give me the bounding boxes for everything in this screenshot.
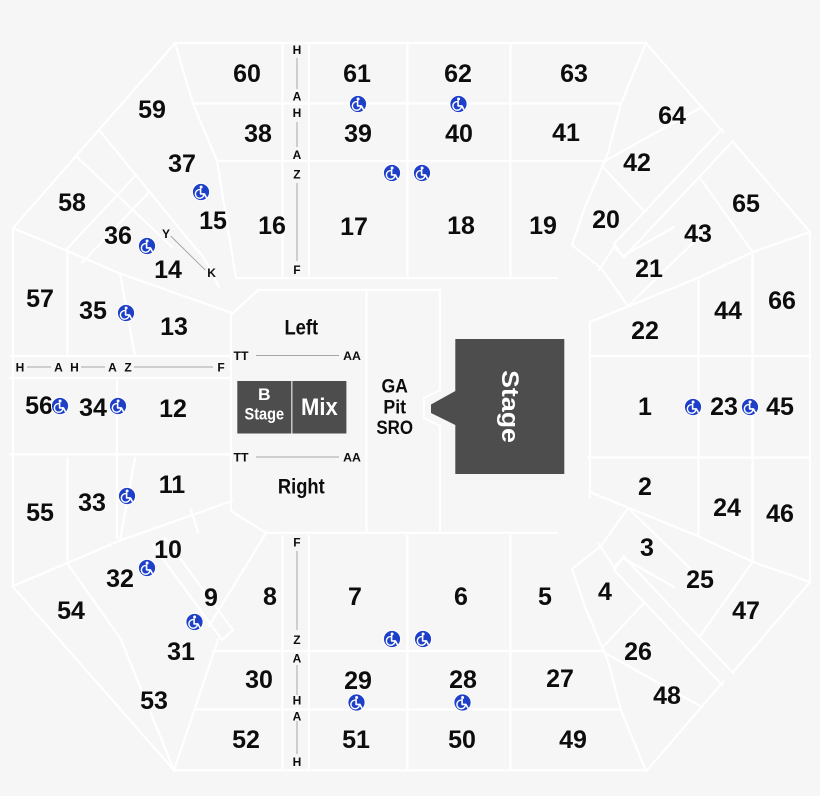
svg-text:30: 30	[245, 666, 273, 694]
svg-text:SRO: SRO	[376, 417, 413, 439]
svg-text:28: 28	[449, 666, 477, 694]
svg-text:31: 31	[167, 638, 195, 666]
svg-text:45: 45	[766, 393, 794, 421]
svg-text:63: 63	[560, 60, 588, 88]
svg-text:36: 36	[104, 222, 132, 250]
svg-text:14: 14	[154, 256, 182, 284]
svg-text:A: A	[293, 148, 302, 162]
svg-text:18: 18	[447, 212, 475, 240]
svg-text:13: 13	[160, 313, 188, 341]
svg-text:59: 59	[138, 96, 166, 124]
svg-text:8: 8	[263, 583, 277, 611]
svg-text:57: 57	[26, 285, 54, 313]
svg-text:4: 4	[598, 578, 612, 606]
svg-text:H: H	[70, 361, 79, 375]
svg-text:37: 37	[168, 150, 196, 178]
svg-text:19: 19	[529, 212, 557, 240]
svg-text:H: H	[293, 694, 302, 708]
svg-text:H: H	[293, 106, 302, 120]
svg-text:F: F	[293, 263, 300, 277]
svg-text:Right: Right	[278, 475, 325, 499]
svg-text:26: 26	[624, 638, 652, 666]
svg-text:A: A	[293, 710, 302, 724]
svg-text:38: 38	[244, 120, 272, 148]
svg-text:50: 50	[448, 726, 476, 754]
svg-text:42: 42	[623, 149, 651, 177]
svg-text:H: H	[16, 361, 25, 375]
svg-text:27: 27	[546, 665, 574, 693]
svg-text:62: 62	[444, 60, 472, 88]
svg-text:49: 49	[559, 726, 587, 754]
svg-text:58: 58	[58, 189, 86, 217]
svg-text:A: A	[54, 361, 63, 375]
svg-text:A: A	[293, 89, 302, 103]
svg-text:43: 43	[684, 220, 712, 248]
svg-text:F: F	[217, 361, 224, 375]
svg-text:54: 54	[57, 597, 85, 625]
svg-text:65: 65	[732, 190, 760, 218]
svg-text:AA: AA	[343, 349, 361, 363]
svg-text:2: 2	[638, 473, 652, 501]
svg-text:5: 5	[538, 583, 552, 611]
svg-text:56: 56	[25, 392, 53, 420]
svg-text:40: 40	[445, 120, 473, 148]
svg-text:Z: Z	[293, 633, 300, 647]
svg-text:32: 32	[106, 565, 134, 593]
svg-text:Z: Z	[124, 361, 131, 375]
svg-text:15: 15	[199, 207, 227, 235]
svg-text:Stage: Stage	[245, 405, 285, 424]
svg-text:20: 20	[592, 206, 620, 234]
svg-text:H: H	[293, 43, 302, 57]
svg-text:41: 41	[552, 119, 580, 147]
svg-text:35: 35	[79, 297, 107, 325]
svg-text:17: 17	[340, 213, 368, 241]
svg-text:34: 34	[79, 394, 107, 422]
svg-text:66: 66	[768, 287, 796, 315]
svg-text:AA: AA	[343, 451, 361, 465]
svg-text:TT: TT	[233, 451, 249, 465]
svg-text:6: 6	[454, 583, 468, 611]
svg-text:51: 51	[342, 726, 370, 754]
svg-text:K: K	[207, 266, 216, 280]
svg-text:7: 7	[348, 583, 362, 611]
svg-text:A: A	[293, 652, 302, 666]
svg-text:Pit: Pit	[383, 397, 406, 419]
svg-text:10: 10	[154, 536, 182, 564]
svg-text:48: 48	[653, 682, 681, 710]
svg-text:F: F	[293, 536, 300, 550]
svg-text:11: 11	[159, 471, 186, 499]
svg-text:Z: Z	[293, 168, 300, 182]
svg-text:9: 9	[204, 584, 218, 612]
svg-text:Left: Left	[284, 316, 318, 340]
svg-text:H: H	[293, 755, 302, 769]
svg-text:16: 16	[258, 212, 286, 240]
svg-text:12: 12	[159, 395, 187, 423]
svg-text:47: 47	[732, 597, 760, 625]
svg-text:3: 3	[640, 534, 654, 562]
svg-text:TT: TT	[233, 349, 249, 363]
svg-text:A: A	[108, 361, 117, 375]
svg-text:23: 23	[710, 393, 738, 421]
svg-text:Mix: Mix	[301, 394, 338, 421]
svg-text:46: 46	[766, 500, 794, 528]
svg-text:GA: GA	[381, 376, 408, 398]
svg-text:24: 24	[713, 494, 741, 522]
svg-text:55: 55	[26, 499, 54, 527]
svg-text:39: 39	[344, 120, 372, 148]
svg-text:22: 22	[631, 317, 659, 345]
svg-text:29: 29	[344, 667, 372, 695]
svg-text:B: B	[258, 385, 271, 404]
svg-text:44: 44	[714, 297, 742, 325]
svg-text:53: 53	[140, 687, 168, 715]
svg-text:Y: Y	[162, 227, 170, 241]
svg-text:21: 21	[635, 255, 663, 283]
svg-text:33: 33	[78, 489, 106, 517]
svg-text:1: 1	[638, 393, 652, 421]
svg-text:61: 61	[343, 60, 371, 88]
svg-text:Stage: Stage	[496, 370, 523, 443]
svg-text:25: 25	[686, 566, 714, 594]
svg-text:64: 64	[658, 102, 686, 130]
svg-text:60: 60	[233, 60, 261, 88]
svg-text:52: 52	[232, 726, 260, 754]
